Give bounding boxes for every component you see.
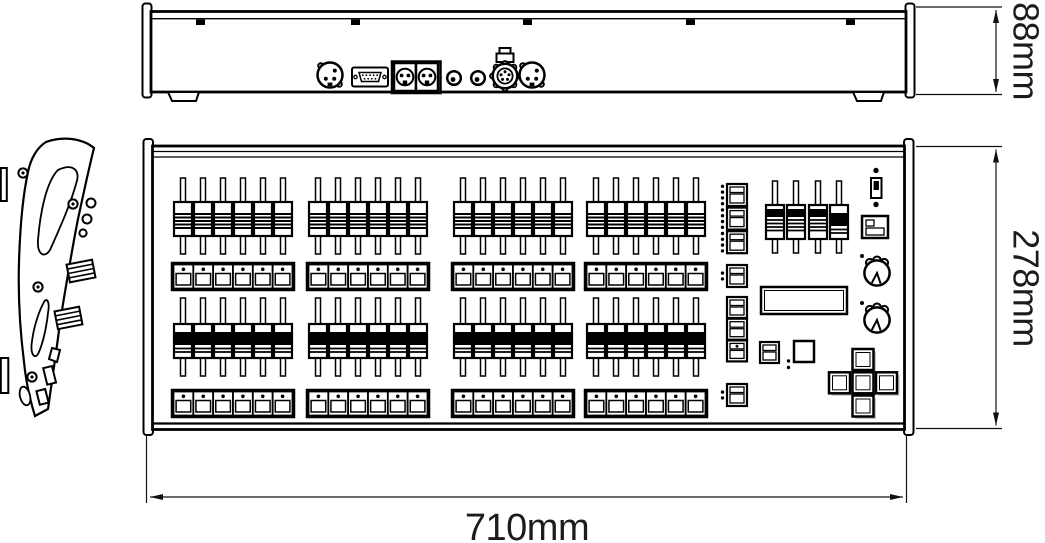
led-indicator	[721, 226, 724, 229]
bump-button-led	[376, 268, 380, 272]
function-button	[727, 340, 747, 361]
fader-cap	[474, 202, 492, 236]
led-indicator	[721, 232, 724, 235]
bump-button-led	[396, 268, 400, 272]
fader-cap	[329, 202, 347, 236]
bump-button-led	[674, 395, 678, 399]
bump-button-led	[376, 395, 380, 399]
small-jack-b	[471, 71, 485, 85]
bump-button-led	[241, 395, 245, 399]
bump-button-led	[201, 395, 205, 399]
fader-cap	[234, 202, 252, 236]
bump-button-led	[654, 268, 658, 272]
bump-button-led	[541, 395, 545, 399]
bump-button-led	[336, 268, 340, 272]
fader-cap	[309, 202, 327, 236]
xlr-3pin-connector-a	[318, 63, 343, 88]
dim-label-panel-depth: 278mm	[1006, 229, 1045, 347]
bump-button-led	[654, 395, 658, 399]
side-view	[1, 139, 96, 416]
fader-cap	[194, 202, 212, 236]
bump-button-led	[521, 268, 525, 272]
led-indicator	[860, 254, 864, 258]
fader-cap	[647, 202, 665, 236]
db9-serial-connector	[352, 68, 388, 87]
enter-button	[794, 341, 814, 362]
bump-button-led	[356, 395, 360, 399]
led-indicator	[860, 301, 864, 305]
bump-button-led	[561, 395, 565, 399]
bump-button-led	[595, 268, 599, 272]
fader-cap	[627, 202, 645, 236]
dim-label-rear-height: 88mm	[1006, 2, 1045, 100]
fader-cap	[554, 202, 572, 236]
bump-button-led	[634, 395, 638, 399]
bump-button-strip	[452, 390, 574, 417]
bump-button-led	[241, 268, 245, 272]
fader-cap	[174, 202, 192, 236]
led-indicator	[721, 271, 724, 274]
bump-button-led	[356, 268, 360, 272]
rotary-knob-1	[864, 257, 889, 286]
fader-cap	[369, 202, 387, 236]
bump-button-led	[317, 268, 321, 272]
bump-button-led	[221, 268, 225, 272]
bump-button-led	[614, 268, 618, 272]
bump-button-strip	[585, 390, 707, 417]
fader-cap	[494, 202, 512, 236]
blackout-button	[862, 216, 888, 238]
bump-button-led	[674, 268, 678, 272]
fader-cap	[587, 202, 605, 236]
led-indicator	[721, 396, 724, 399]
bump-button-led	[634, 268, 638, 272]
bump-button-led	[281, 268, 285, 272]
bump-button-strip	[172, 390, 294, 417]
led-indicator	[721, 249, 724, 252]
top-panel-view	[144, 139, 914, 435]
led-indicator	[721, 196, 724, 199]
bump-button-strip	[585, 263, 707, 290]
bump-button-led	[501, 268, 505, 272]
rear-foot-left	[168, 92, 199, 101]
menu-button	[760, 342, 779, 363]
led-indicator	[721, 208, 724, 211]
led-indicator	[721, 243, 724, 246]
fader-cap	[687, 202, 705, 236]
fader-cap	[514, 202, 532, 236]
bump-button-strip	[307, 390, 429, 417]
fader-cap	[454, 202, 472, 236]
lighting-console-dimensional-drawing: 88mm 278mm 710mm	[0, 0, 1045, 543]
bump-button-led	[462, 268, 466, 272]
fader-cap	[389, 202, 407, 236]
led-indicator	[721, 238, 724, 241]
bump-button-led	[521, 395, 525, 399]
function-button	[727, 319, 747, 340]
bump-button-led	[481, 268, 485, 272]
bump-button-led	[182, 395, 186, 399]
side-mount-tab	[1, 168, 7, 201]
small-jack-a	[447, 71, 461, 85]
rotary-knob-2	[864, 304, 889, 333]
bump-button-led	[462, 395, 466, 399]
bump-button-led	[416, 395, 420, 399]
bump-button-led	[561, 268, 565, 272]
side-mount-tab	[1, 358, 9, 393]
bump-button-led	[416, 268, 420, 272]
led-indicator	[721, 220, 724, 223]
bump-button-led	[261, 268, 265, 272]
bump-button-strip	[452, 263, 574, 290]
bump-button-led	[221, 395, 225, 399]
led-indicator	[721, 185, 724, 188]
led-indicator	[721, 202, 724, 205]
din-connector-b	[416, 63, 438, 91]
fader-cap	[607, 202, 625, 236]
rear-foot-right	[853, 92, 884, 101]
fader-cap	[534, 202, 552, 236]
bump-button-strip	[307, 263, 429, 290]
bump-button-led	[614, 395, 618, 399]
fader-cap	[214, 202, 232, 236]
led-indicator	[787, 359, 790, 362]
bump-button-led	[501, 395, 505, 399]
din-connector-a	[394, 63, 416, 91]
dim-label-width: 710mm	[465, 507, 589, 543]
led-indicator	[873, 168, 878, 173]
bump-button-led	[281, 395, 285, 399]
bump-button-led	[694, 268, 698, 272]
bump-button-led	[201, 268, 205, 272]
fader-cap	[349, 202, 367, 236]
rear-view	[143, 4, 915, 102]
fader-cap	[667, 202, 685, 236]
bump-button-led	[541, 268, 545, 272]
bump-button-led	[396, 395, 400, 399]
fader-cap	[409, 202, 427, 236]
led-indicator	[721, 214, 724, 217]
xlr-3pin-connector-b	[520, 63, 545, 88]
led-indicator	[721, 190, 724, 193]
lcd-display	[761, 287, 847, 314]
led-indicator	[721, 390, 724, 393]
led-indicator	[873, 202, 878, 207]
bump-button-led	[481, 395, 485, 399]
bump-button-led	[595, 395, 599, 399]
function-button	[727, 297, 747, 318]
bump-button-strip	[172, 263, 294, 290]
led-indicator	[721, 277, 724, 280]
led-indicator	[787, 366, 790, 369]
bump-button-led	[261, 395, 265, 399]
bump-button-led	[694, 395, 698, 399]
bump-button-led	[317, 395, 321, 399]
led-indicator	[736, 345, 739, 348]
fader-cap	[274, 202, 292, 236]
bump-button-led	[336, 395, 340, 399]
fader-cap	[254, 202, 272, 236]
bump-button-led	[182, 268, 186, 272]
